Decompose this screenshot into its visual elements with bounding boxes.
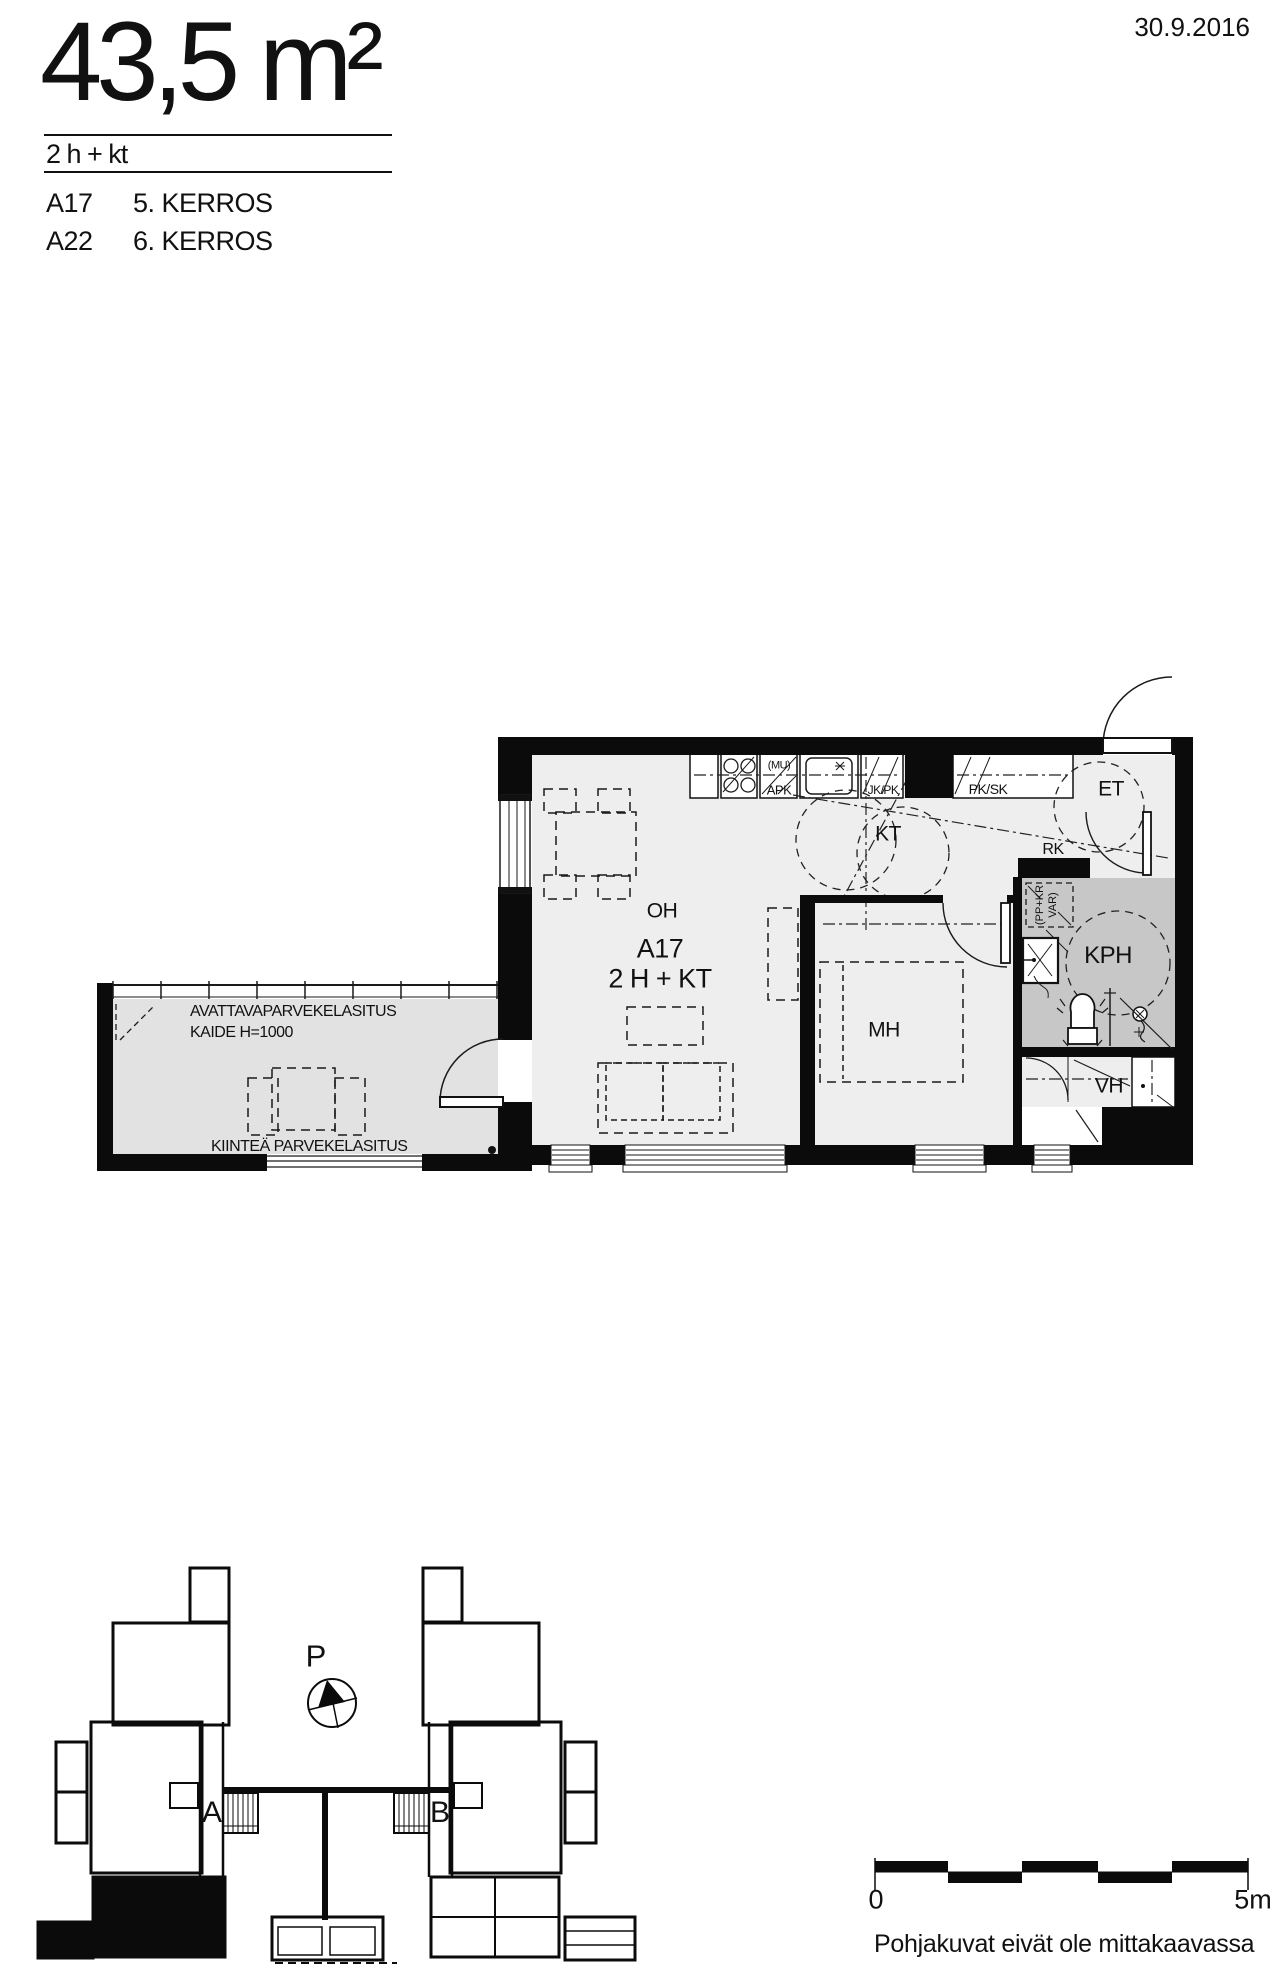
label-apk: APK xyxy=(767,784,792,797)
scale-bar xyxy=(875,1858,1248,1890)
stair-a-label: A xyxy=(202,1798,222,1828)
divider xyxy=(44,134,392,136)
room-label-oh: OH xyxy=(647,901,678,922)
unit-id-1: A17 xyxy=(46,190,93,217)
window xyxy=(549,1145,592,1172)
plan-unit-id: A17 xyxy=(637,936,684,963)
label-mu: (MU) xyxy=(768,761,790,772)
apartment-plan xyxy=(97,677,1193,1172)
window xyxy=(1032,1145,1072,1172)
scale-five: 5m xyxy=(1234,1887,1272,1914)
room-label-kph: KPH xyxy=(1084,944,1132,968)
unit-id-2: A22 xyxy=(46,228,93,255)
stair-b-label: B xyxy=(430,1798,450,1828)
date: 30.9.2016 xyxy=(1050,14,1250,40)
window xyxy=(623,1145,787,1172)
apartment-location-highlight xyxy=(93,1877,225,1957)
entrance-door xyxy=(1103,677,1172,753)
label-jk-pk: JK/PK xyxy=(868,784,899,796)
window xyxy=(498,795,532,893)
storage-reservation-label: (PP+KR VAR) xyxy=(1034,885,1060,925)
balcony-fixed-glazing-label: KIINTEÄ PARVEKELASITUS xyxy=(211,1139,407,1155)
room-label-kt: KT xyxy=(875,824,901,845)
divider xyxy=(44,171,392,173)
layout-type: 2 h + kt xyxy=(46,141,127,168)
stairs-a xyxy=(223,1793,258,1833)
unit-floor-1: 5. KERROS xyxy=(133,190,273,217)
label-pk-sk: PK/SK xyxy=(969,782,1008,796)
room-label-rk: RK xyxy=(1042,842,1063,858)
north-compass xyxy=(308,1679,357,1728)
floor-plan-page: 43,5 m² 2 h + kt A17 5. KERROS A22 6. KE… xyxy=(0,0,1283,1975)
unit-floor-2: 6. KERROS xyxy=(133,228,273,255)
stairs-b xyxy=(394,1793,429,1833)
north-label: P xyxy=(306,1641,327,1672)
balcony-railing-label: KAIDE H=1000 xyxy=(190,1025,293,1041)
plan-unit-type: 2 H + KT xyxy=(608,966,711,993)
room-label-mh: MH xyxy=(868,1020,900,1041)
balcony-drain xyxy=(488,1146,496,1154)
area-title: 43,5 m² xyxy=(40,6,378,118)
shaft xyxy=(1132,1057,1175,1107)
rk-niche xyxy=(1018,858,1090,878)
scale-zero: 0 xyxy=(868,1887,883,1914)
window xyxy=(913,1145,986,1172)
room-label-vh: VH xyxy=(1095,1076,1123,1097)
site-plan xyxy=(38,1568,635,1963)
balcony-openable-glazing-label: AVATTAVAPARVEKELASITUS xyxy=(190,1004,396,1020)
scale-note: Pohjakuvat eivät ole mittakaavassa xyxy=(874,1932,1254,1957)
room-label-et: ET xyxy=(1098,779,1124,800)
